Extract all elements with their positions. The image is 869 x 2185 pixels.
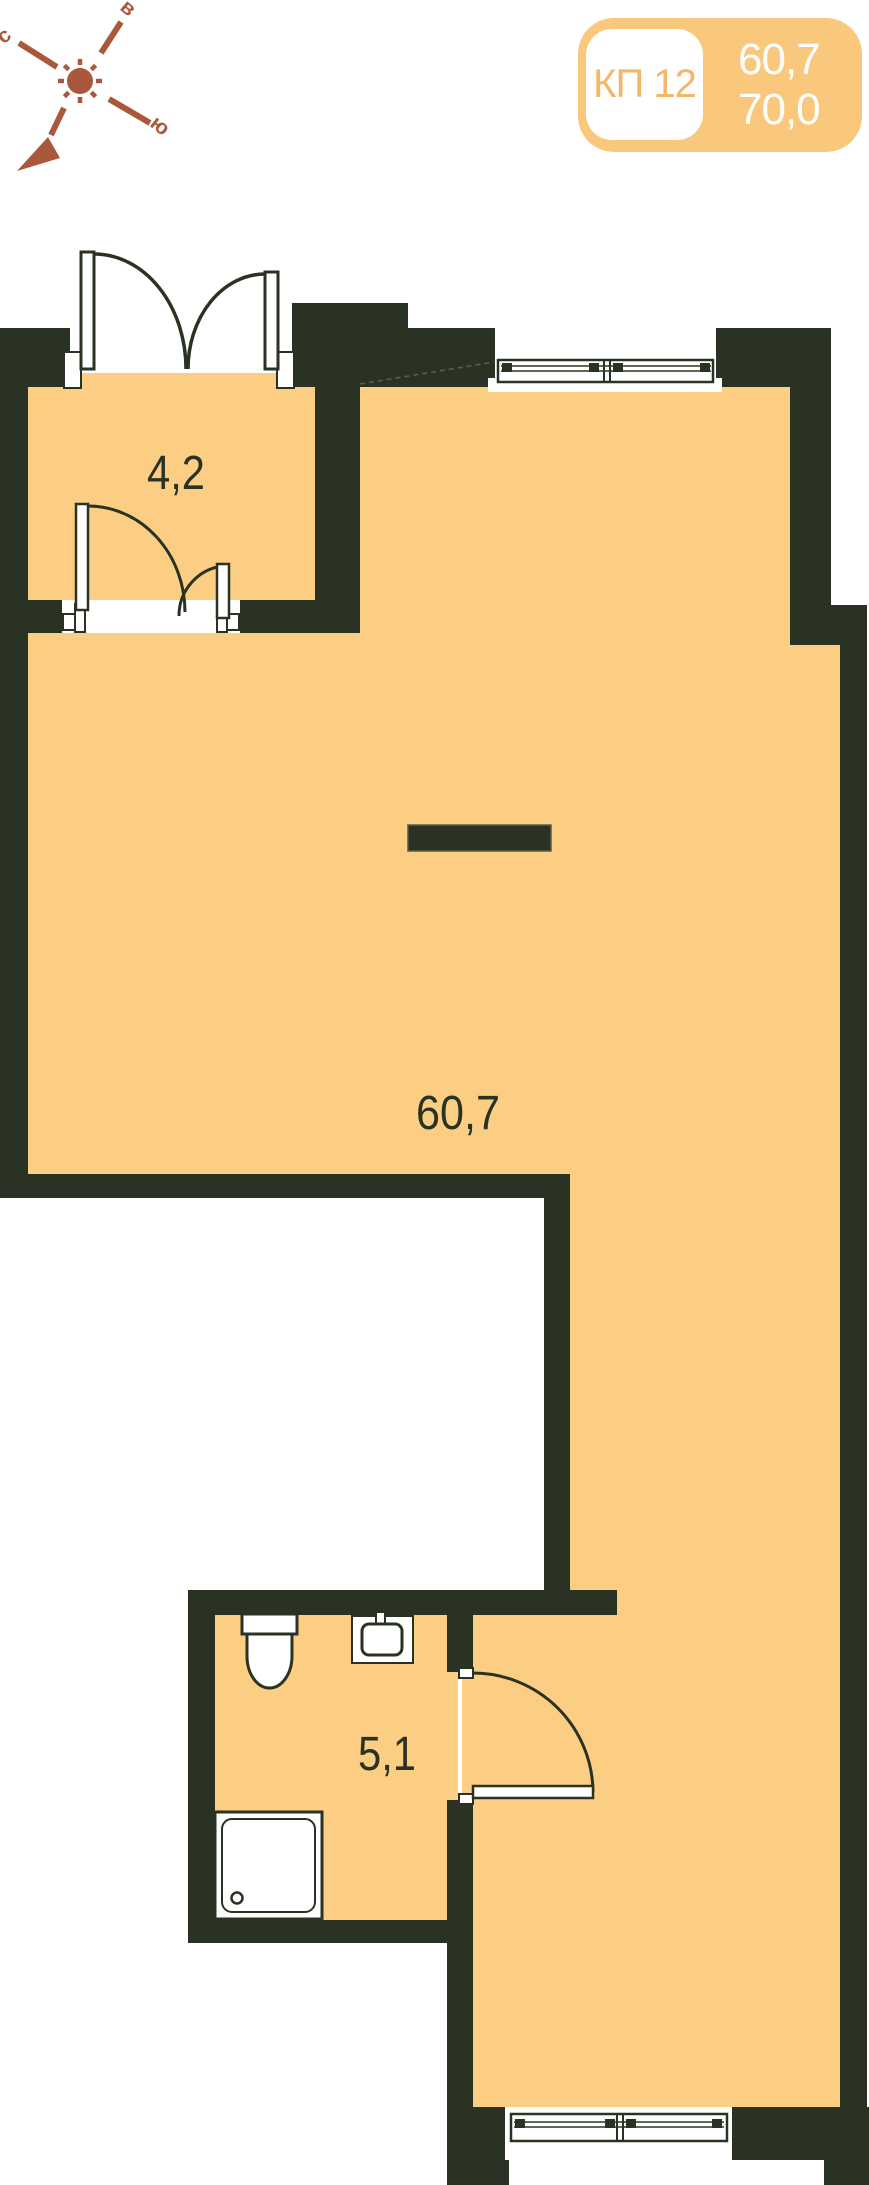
door-jamb: [459, 1668, 473, 1678]
wall-segment: [188, 1615, 215, 1943]
unit-number-chip: КП 12: [586, 29, 703, 140]
unit-badge: КП 12 60,7 70,0: [578, 18, 862, 152]
compass-rose: с в ю: [0, 0, 174, 171]
wall-segment: [28, 600, 62, 633]
door-swing-arc: [188, 274, 265, 369]
wall-segment: [0, 1174, 570, 1198]
compass-line-east: [101, 22, 121, 53]
wall-segment: [315, 328, 360, 633]
compass-east-label: в: [116, 0, 141, 21]
sink: [352, 1612, 413, 1663]
door-jamb: [277, 352, 294, 388]
unit-number-label: КП 12: [593, 62, 696, 107]
floor-plan: с в ю 4,2 60,7 5,1: [0, 0, 869, 2185]
shower-drain: [232, 1893, 243, 1904]
shower-tray: [215, 1812, 322, 1919]
floor-plan-page: с в ю 4,2 60,7 5,1 КП 12 60,7 70,0: [0, 0, 869, 2185]
compass-sun: [67, 68, 93, 94]
door-leaf: [76, 504, 88, 610]
window-handle: [626, 2119, 636, 2128]
window-handle: [700, 363, 710, 372]
wall-segment: [790, 328, 831, 605]
vestibule-area-label: 4,2: [147, 447, 205, 500]
window-top: [488, 332, 722, 392]
window-apron: [509, 2160, 824, 2185]
door-opening-line: [458, 1676, 462, 1796]
door-jamb: [459, 1794, 473, 1804]
wall-segment: [447, 1800, 473, 2107]
compass-line-south: [109, 99, 150, 123]
window-handle: [712, 2119, 722, 2128]
door-swing-arc: [94, 254, 186, 369]
wall-segment: [188, 1920, 448, 1943]
wall-segment: [447, 1615, 473, 1672]
compass-line-arrow: [51, 108, 64, 135]
main-room-area-label: 60,7: [416, 1087, 500, 1140]
wall-segment: [188, 1590, 617, 1615]
entrance-double-door: [64, 252, 294, 388]
window-handle: [613, 363, 623, 372]
unit-area-living: 60,7: [738, 36, 820, 84]
shower-outer: [215, 1812, 322, 1919]
wall-segment: [544, 1198, 570, 1613]
compass-south-label: ю: [146, 111, 174, 140]
door-leaf: [217, 564, 229, 618]
door-jamb: [64, 352, 81, 388]
wall-island: [408, 825, 551, 851]
wall-pilaster: [292, 303, 408, 330]
sink-basin: [362, 1624, 402, 1655]
room-floors: [28, 373, 840, 2107]
compass-arrow-head: [17, 137, 60, 171]
wall-segment: [0, 328, 28, 1174]
toilet-bowl: [247, 1634, 292, 1688]
window-handle: [605, 2119, 615, 2128]
unit-area-total: 70,0: [738, 86, 820, 134]
door-leaf: [473, 1786, 593, 1798]
wall-segment: [840, 622, 867, 2107]
unit-areas: 60,7 70,0: [738, 18, 820, 152]
toilet-tank: [242, 1614, 297, 1634]
window-handle: [515, 2119, 525, 2128]
window-handle: [589, 363, 599, 372]
window-handle: [502, 363, 512, 372]
compass-north-label: с: [0, 23, 16, 49]
wall-segment: [240, 600, 325, 633]
door-leaf: [265, 272, 278, 369]
door-leaf: [81, 252, 94, 369]
compass-line-north: [19, 43, 57, 67]
bathroom-area-label: 5,1: [358, 1728, 416, 1781]
